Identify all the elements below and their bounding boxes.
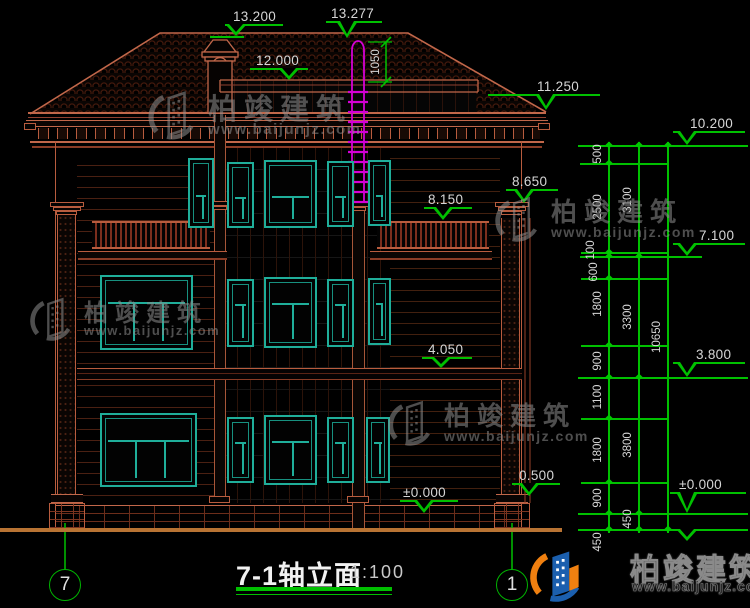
watermark-logo-icon	[386, 396, 438, 448]
window	[264, 277, 317, 348]
axis-label-left: 7	[60, 574, 71, 595]
window-mullion	[164, 442, 166, 478]
elevation-value: ±0.000	[403, 485, 446, 500]
window	[327, 417, 354, 483]
dim-value: 100	[585, 240, 597, 259]
window	[327, 279, 354, 347]
watermark-logo-icon-wrap	[493, 192, 545, 249]
elevation-value: 7.100	[699, 228, 734, 243]
dim-value-1050: 1050	[370, 49, 382, 75]
window	[188, 158, 214, 228]
dim-extension-line	[581, 418, 668, 420]
dim-extension-line	[578, 377, 748, 379]
window-mullion	[379, 444, 381, 474]
watermark-url: www.baijunjz.com	[84, 323, 220, 338]
dim-value: 450	[622, 509, 634, 528]
dim-value: 10650	[651, 321, 663, 353]
window-mullion	[381, 197, 383, 217]
window-mullion	[135, 442, 137, 478]
dim-extension-line	[210, 36, 244, 38]
company-logo-url: www.baijunjz.com	[632, 578, 750, 594]
window-inner-frame	[232, 422, 249, 478]
window-mullion	[242, 199, 244, 219]
title-underline-thin	[236, 594, 392, 595]
drawing-scale: 1:100	[350, 562, 405, 583]
dim-value: 450	[592, 532, 604, 551]
dim-value: 3800	[622, 432, 634, 458]
watermark-url: www.baijunjz.com	[208, 121, 361, 138]
watermark-logo-icon-wrap	[386, 396, 438, 453]
window	[227, 279, 254, 347]
window-transom	[235, 304, 246, 306]
dim-value: 900	[592, 488, 604, 507]
elevation-value: 13.200	[233, 9, 276, 24]
downspout	[525, 218, 530, 503]
window-transom	[272, 441, 309, 443]
window-transom	[335, 196, 346, 198]
window-transom	[272, 303, 309, 305]
window	[327, 161, 354, 227]
axis-bubble-7: 7	[49, 569, 81, 601]
window	[227, 417, 254, 483]
watermark-url: www.baijunjz.com	[444, 428, 589, 444]
axis-label-right: 1	[507, 574, 518, 595]
window-mullion	[381, 305, 383, 336]
dim-extension-line	[581, 482, 668, 484]
dim-value: 600	[588, 262, 600, 281]
dim-value: 900	[592, 351, 604, 370]
window-mullion	[292, 198, 294, 219]
dim-value: 1800	[592, 291, 604, 317]
window-transom	[108, 440, 189, 442]
elevation-value: 4.050	[428, 342, 463, 357]
window-transom	[272, 196, 309, 198]
window-transom	[196, 195, 206, 197]
window-mullion	[292, 305, 294, 339]
window	[100, 413, 197, 487]
dim-value: 500	[592, 144, 604, 163]
elevation-value: ±0.000	[679, 477, 722, 492]
window	[264, 415, 317, 485]
window	[368, 278, 391, 345]
window-transom	[235, 442, 246, 444]
window-inner-frame	[232, 167, 249, 223]
watermark-url: www.baijunjz.com	[551, 224, 696, 240]
window-mullion	[202, 197, 204, 219]
window-mullion	[342, 444, 344, 474]
window-inner-frame	[371, 422, 385, 478]
watermark-logo-icon	[493, 192, 545, 244]
window	[368, 160, 391, 226]
elevation-value: 12.000	[256, 53, 299, 68]
window-inner-frame	[332, 422, 349, 478]
window-inner-frame	[105, 418, 192, 482]
window-inner-frame	[332, 166, 349, 222]
window-mullion	[342, 198, 344, 218]
company-logo-icon	[528, 544, 588, 604]
window	[264, 160, 317, 228]
window-mullion	[342, 306, 344, 338]
watermark-logo-icon	[28, 293, 78, 343]
watermark-logo-icon-wrap	[146, 86, 202, 147]
axis-bubble-1: 1	[496, 569, 528, 601]
elevation-drawing: 5002500100600180090011001800900450310033…	[0, 0, 750, 608]
window-transom	[235, 197, 246, 199]
elevation-value: 8.650	[512, 174, 547, 189]
window-inner-frame	[373, 165, 386, 221]
window-inner-frame	[269, 282, 312, 343]
title-underline-thick	[236, 587, 392, 591]
elevation-value: 11.250	[537, 79, 579, 94]
window-inner-frame	[193, 163, 209, 223]
window-mullion	[292, 443, 294, 476]
elevation-value: 8.150	[428, 192, 463, 207]
dim-value: 3300	[622, 304, 634, 330]
elevation-value: 10.200	[690, 116, 733, 131]
window-mullion	[242, 444, 244, 474]
dim-extension-line	[578, 513, 748, 515]
elevation-value: 13.277	[331, 6, 374, 21]
elevation-value: 0.500	[519, 468, 554, 483]
window-inner-frame	[373, 283, 386, 340]
window-transom	[335, 304, 346, 306]
window-transom	[335, 442, 346, 444]
watermark-logo-icon-wrap	[28, 293, 78, 348]
watermark-logo-icon	[146, 86, 202, 142]
window-inner-frame	[269, 165, 312, 223]
window-inner-frame	[269, 420, 312, 480]
window-inner-frame	[332, 284, 349, 342]
dim-value: 1800	[592, 437, 604, 463]
window-inner-frame	[232, 284, 249, 342]
window-mullion	[242, 306, 244, 338]
elevation-value: 3.800	[696, 347, 731, 362]
dim-value: 1100	[592, 385, 604, 410]
window	[227, 162, 254, 228]
